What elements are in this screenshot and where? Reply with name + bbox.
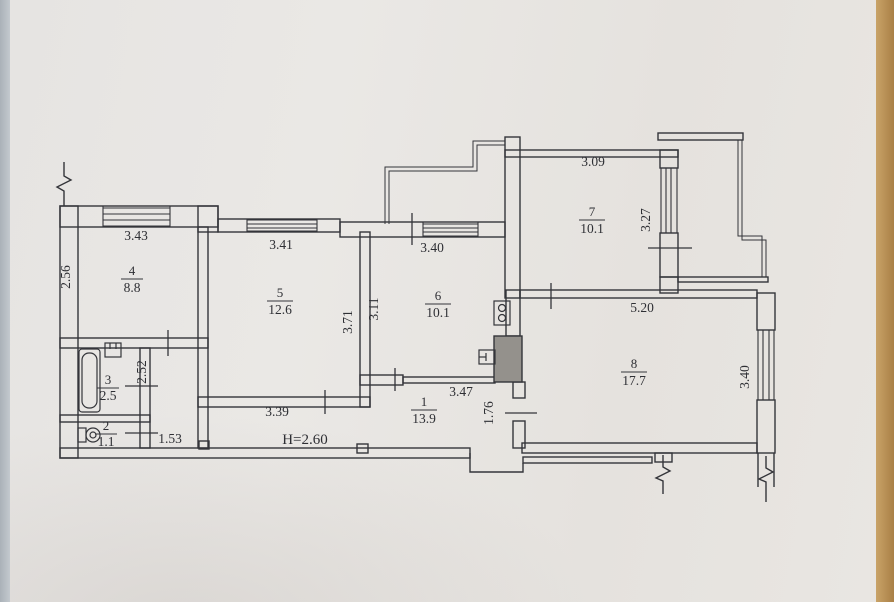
wall-bottom bbox=[60, 448, 470, 458]
wall-top-room4 bbox=[60, 206, 218, 227]
dim-corridor-width: 1.53 bbox=[158, 431, 182, 446]
wall-room6-bottom bbox=[360, 375, 403, 385]
window-room7 bbox=[660, 168, 678, 233]
room-3-area: 2.5 bbox=[100, 388, 117, 403]
wall-break-icon bbox=[656, 455, 670, 494]
stove-icon bbox=[494, 301, 510, 325]
dim-room4-depth: 2.56 bbox=[58, 265, 73, 289]
wall-room7-right-mid bbox=[660, 233, 678, 277]
bath-sink-icon bbox=[105, 343, 121, 357]
window-room6 bbox=[423, 222, 478, 237]
dim-room5-width-top: 3.41 bbox=[269, 237, 293, 252]
room-7-label: 7 10.1 bbox=[579, 204, 605, 236]
room-4-area: 8.8 bbox=[124, 280, 141, 295]
floor-plan: 4 8.8 5 12.6 6 10.1 7 10.1 8 17.7 3 2.5 bbox=[0, 0, 894, 602]
wall-kitchen-right bbox=[506, 290, 520, 336]
dim-room5-width-bottom: 3.39 bbox=[265, 404, 289, 419]
room-2-number: 2 bbox=[103, 418, 110, 433]
wall-room8-top bbox=[520, 290, 757, 298]
wall-room7-right-top bbox=[660, 150, 678, 168]
room-7-area: 10.1 bbox=[580, 221, 604, 236]
window-room5 bbox=[247, 219, 317, 232]
dim-room6-width: 3.40 bbox=[420, 240, 444, 255]
room-1-label: 1 13.9 bbox=[411, 394, 437, 426]
dim-room8-window: 3.40 bbox=[737, 365, 752, 389]
room-4-label: 4 8.8 bbox=[121, 263, 143, 295]
room-6-area: 10.1 bbox=[426, 305, 450, 320]
room-1-number: 1 bbox=[421, 394, 428, 409]
room-8-number: 8 bbox=[631, 356, 638, 371]
balcony-right-bottom bbox=[678, 277, 768, 282]
wall-left bbox=[60, 206, 78, 458]
door-ticks bbox=[125, 213, 692, 433]
room-5-number: 5 bbox=[277, 285, 284, 300]
room-6-number: 6 bbox=[435, 288, 442, 303]
room-1-area: 13.9 bbox=[412, 411, 436, 426]
wall-room8-bottom bbox=[522, 443, 757, 453]
dim-bath-depth: 2.52 bbox=[134, 360, 149, 384]
landing-wall bbox=[523, 457, 652, 463]
wall-hall-room8-a bbox=[513, 382, 525, 398]
wall-top-room5 bbox=[218, 219, 340, 232]
dim-room7-balcony: 3.27 bbox=[638, 208, 653, 232]
wall-room8-right-low bbox=[757, 400, 775, 453]
dimension-labels: 3.43 3.41 3.40 3.09 5.20 3.39 3.47 1.53 … bbox=[58, 154, 752, 448]
vent-shaft bbox=[494, 336, 522, 382]
dim-room5-depth: 3.71 bbox=[340, 310, 355, 334]
dim-room4-width: 3.43 bbox=[124, 228, 148, 243]
wall-room8-right-top bbox=[757, 293, 775, 330]
room-5-area: 12.6 bbox=[268, 302, 292, 317]
room-2-area: 1.1 bbox=[98, 434, 115, 449]
balcony-right bbox=[738, 140, 766, 277]
room-8-area: 17.7 bbox=[622, 373, 646, 388]
wall-hall-room8-b bbox=[513, 421, 525, 448]
wall-pier bbox=[505, 137, 520, 298]
wall-break-icon bbox=[759, 456, 773, 502]
entrance-vestibule bbox=[470, 453, 523, 472]
wall-break-icon bbox=[57, 162, 71, 206]
windows bbox=[103, 168, 775, 400]
room-4-number: 4 bbox=[129, 263, 136, 278]
dim-room8-width: 5.20 bbox=[630, 300, 654, 315]
balcony-kitchen bbox=[385, 141, 505, 224]
room-6-label: 6 10.1 bbox=[425, 288, 451, 320]
ceiling-height-note: H=2.60 bbox=[282, 432, 328, 448]
dim-hall-door-wall: 1.76 bbox=[481, 401, 496, 425]
balcony-right-top bbox=[658, 133, 743, 140]
room-5-label: 5 12.6 bbox=[267, 285, 293, 317]
room-labels: 4 8.8 5 12.6 6 10.1 7 10.1 8 17.7 3 2.5 bbox=[95, 204, 647, 449]
bathtub-icon bbox=[79, 349, 100, 412]
room-8-label: 8 17.7 bbox=[621, 356, 647, 388]
window-room4 bbox=[103, 206, 170, 227]
kitchen-sink-icon bbox=[479, 350, 495, 364]
room-7-number: 7 bbox=[589, 204, 596, 219]
window-room8 bbox=[757, 330, 775, 400]
dim-room7-width: 3.09 bbox=[581, 154, 605, 169]
room-3-number: 3 bbox=[105, 372, 112, 387]
dim-room6-depth: 3.11 bbox=[366, 297, 381, 320]
wall-room4-bottom bbox=[60, 338, 208, 348]
wall-room6-bottom-thin bbox=[403, 377, 495, 383]
dim-hall-width: 3.47 bbox=[449, 384, 473, 399]
